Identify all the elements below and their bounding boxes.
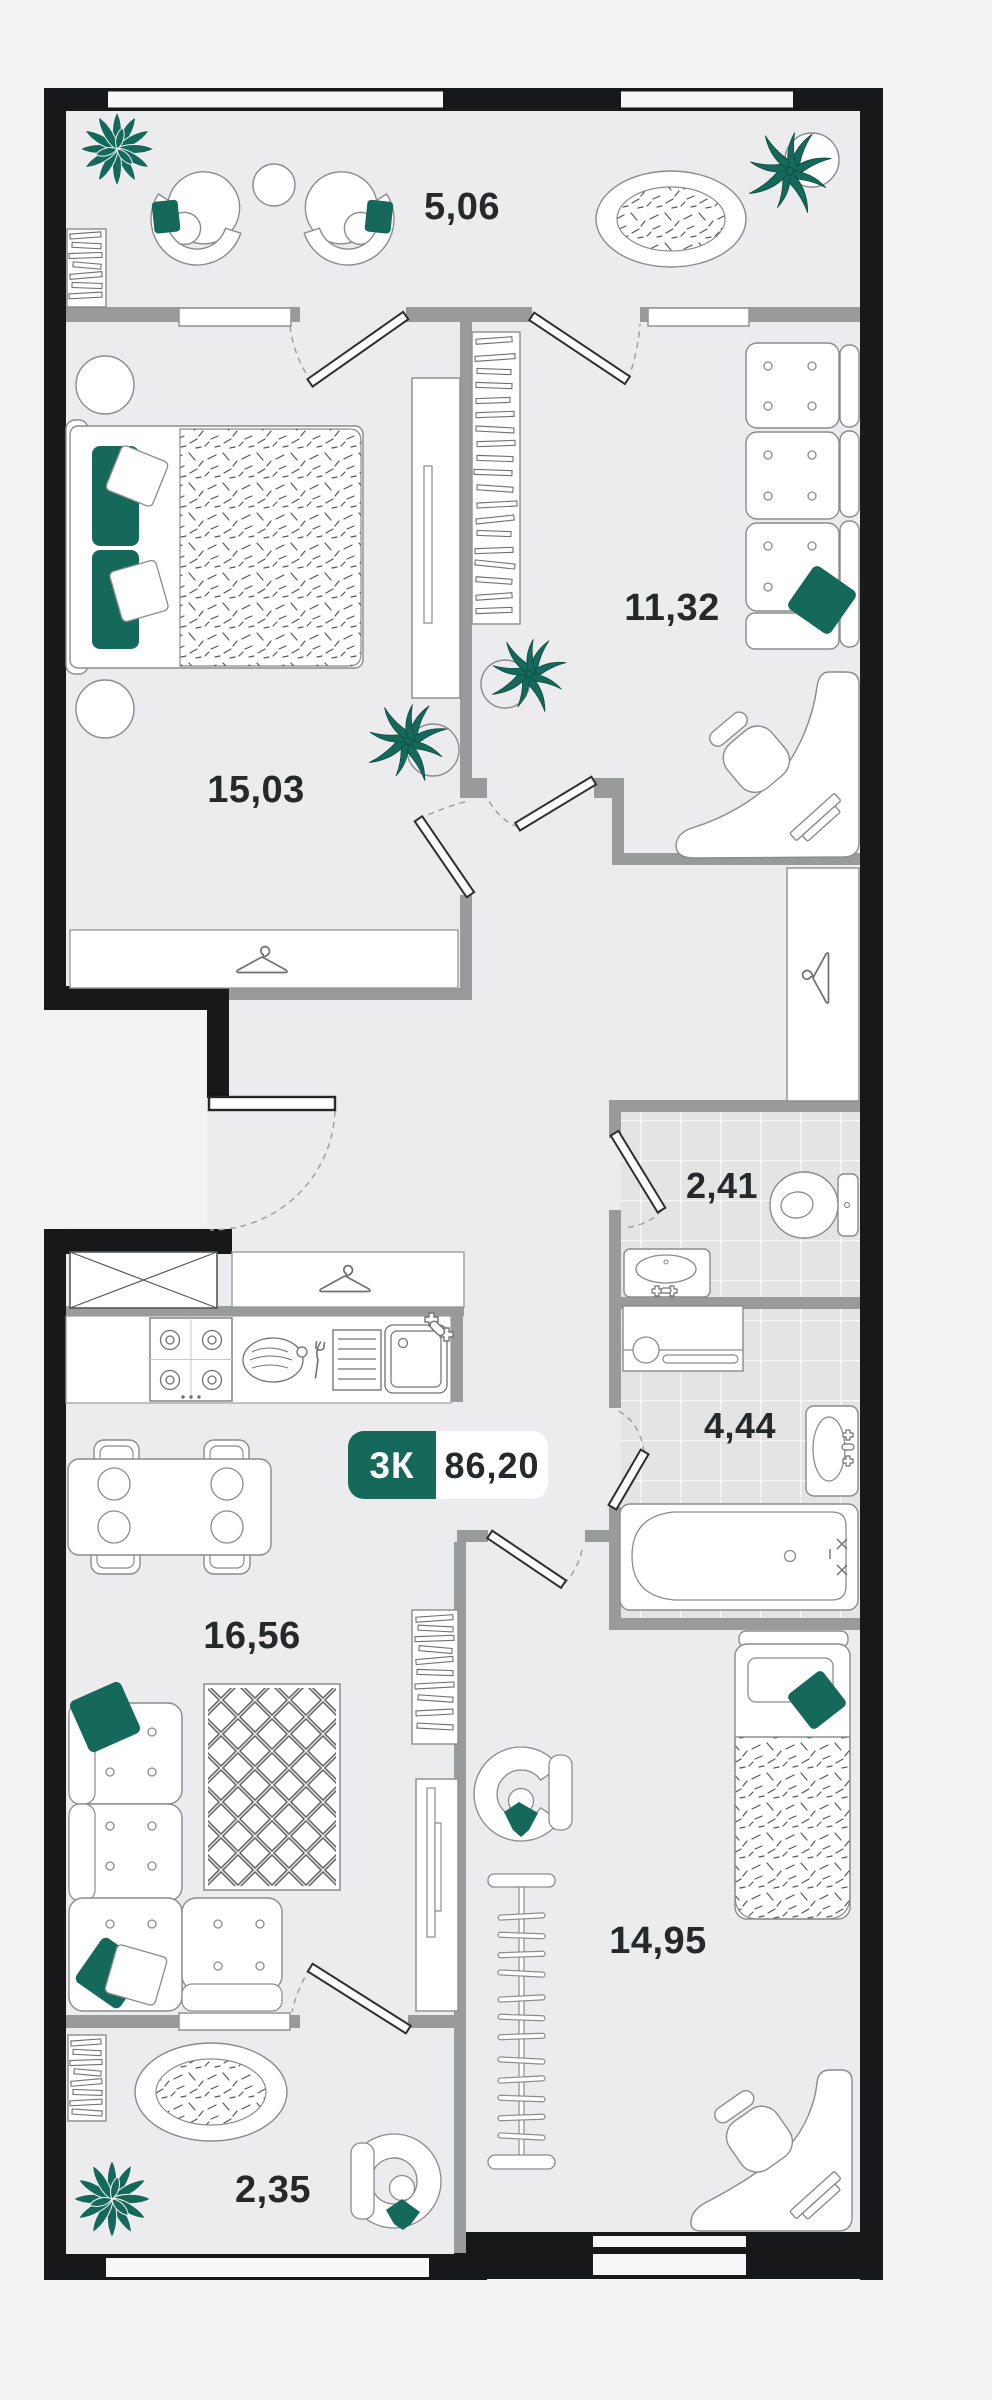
svg-text:2,41: 2,41 [686, 1165, 758, 1206]
svg-text:15,03: 15,03 [207, 769, 305, 811]
svg-text:14,95: 14,95 [609, 1920, 707, 1962]
svg-text:4,44: 4,44 [704, 1405, 776, 1446]
svg-text:16,56: 16,56 [203, 1615, 301, 1657]
svg-text:86,20: 86,20 [444, 1445, 539, 1486]
svg-text:2,35: 2,35 [235, 2169, 311, 2211]
svg-text:5,06: 5,06 [424, 186, 500, 228]
svg-text:3К: 3К [369, 1445, 414, 1486]
svg-text:11,32: 11,32 [624, 587, 720, 629]
